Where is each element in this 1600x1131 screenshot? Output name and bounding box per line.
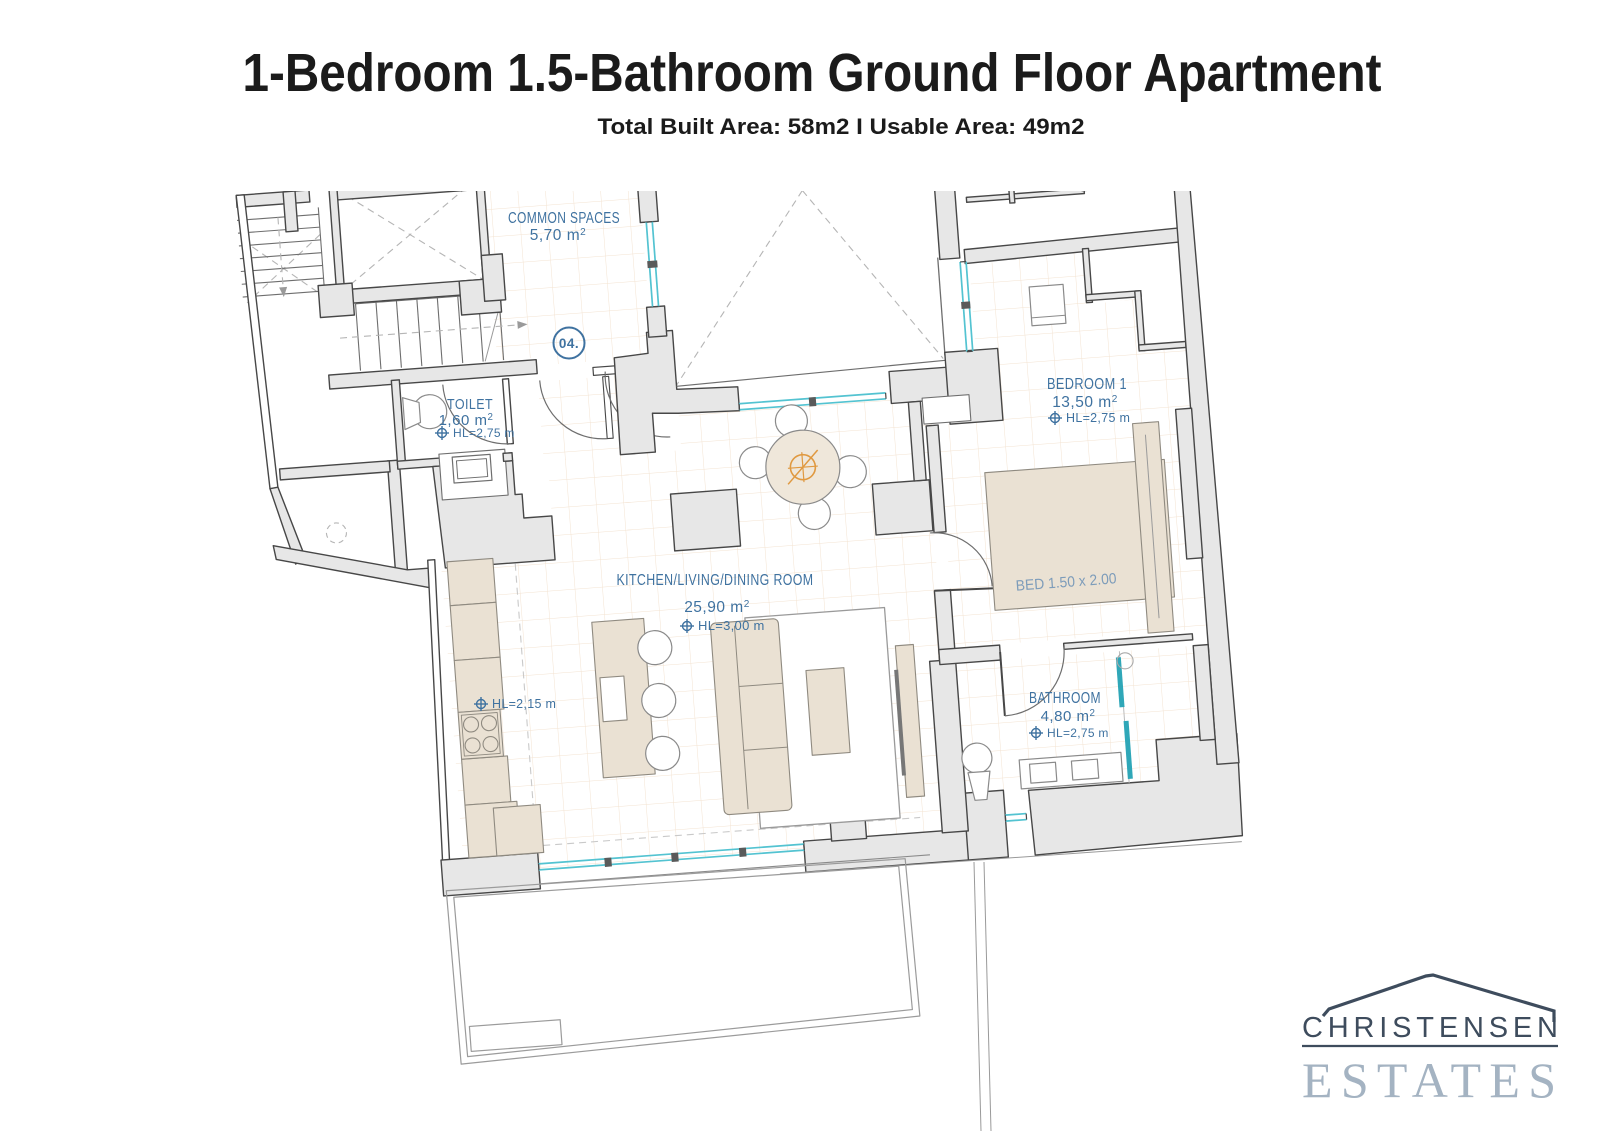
svg-text:1-Bedroom 1.5-Bathroom Ground: 1-Bedroom 1.5-Bathroom Ground Floor Apar… [243,43,1382,103]
svg-text:TOILET: TOILET [447,396,493,413]
svg-text:4,80 m2: 4,80 m2 [1041,708,1096,725]
svg-text:5,70 m2: 5,70 m2 [530,227,587,244]
svg-text:BATHROOM: BATHROOM [1029,690,1101,707]
svg-text:HL=3,00 m: HL=3,00 m [698,618,765,633]
svg-text:ESTATES: ESTATES [1302,1052,1556,1108]
svg-text:04.: 04. [559,336,579,351]
svg-text:13,50 m2: 13,50 m2 [1052,394,1118,411]
svg-text:HL=2,75 m: HL=2,75 m [1066,411,1130,425]
svg-text:25,90 m2: 25,90 m2 [684,599,750,616]
svg-text:COMMON SPACES: COMMON SPACES [508,210,620,227]
svg-text:KITCHEN/LIVING/DINING ROOM: KITCHEN/LIVING/DINING ROOM [617,572,814,589]
svg-text:BEDROOM 1: BEDROOM 1 [1047,376,1127,393]
svg-text:Total Built Area: 58m2 I Usabl: Total Built Area: 58m2 I Usable Area: 49… [598,114,1085,139]
svg-text:HL=2,15 m: HL=2,15 m [492,697,556,711]
svg-text:HL=2,75 m: HL=2,75 m [1047,726,1109,740]
svg-text:HL=2,75 m: HL=2,75 m [453,426,515,440]
svg-text:CHRISTENSEN: CHRISTENSEN [1302,1012,1558,1044]
